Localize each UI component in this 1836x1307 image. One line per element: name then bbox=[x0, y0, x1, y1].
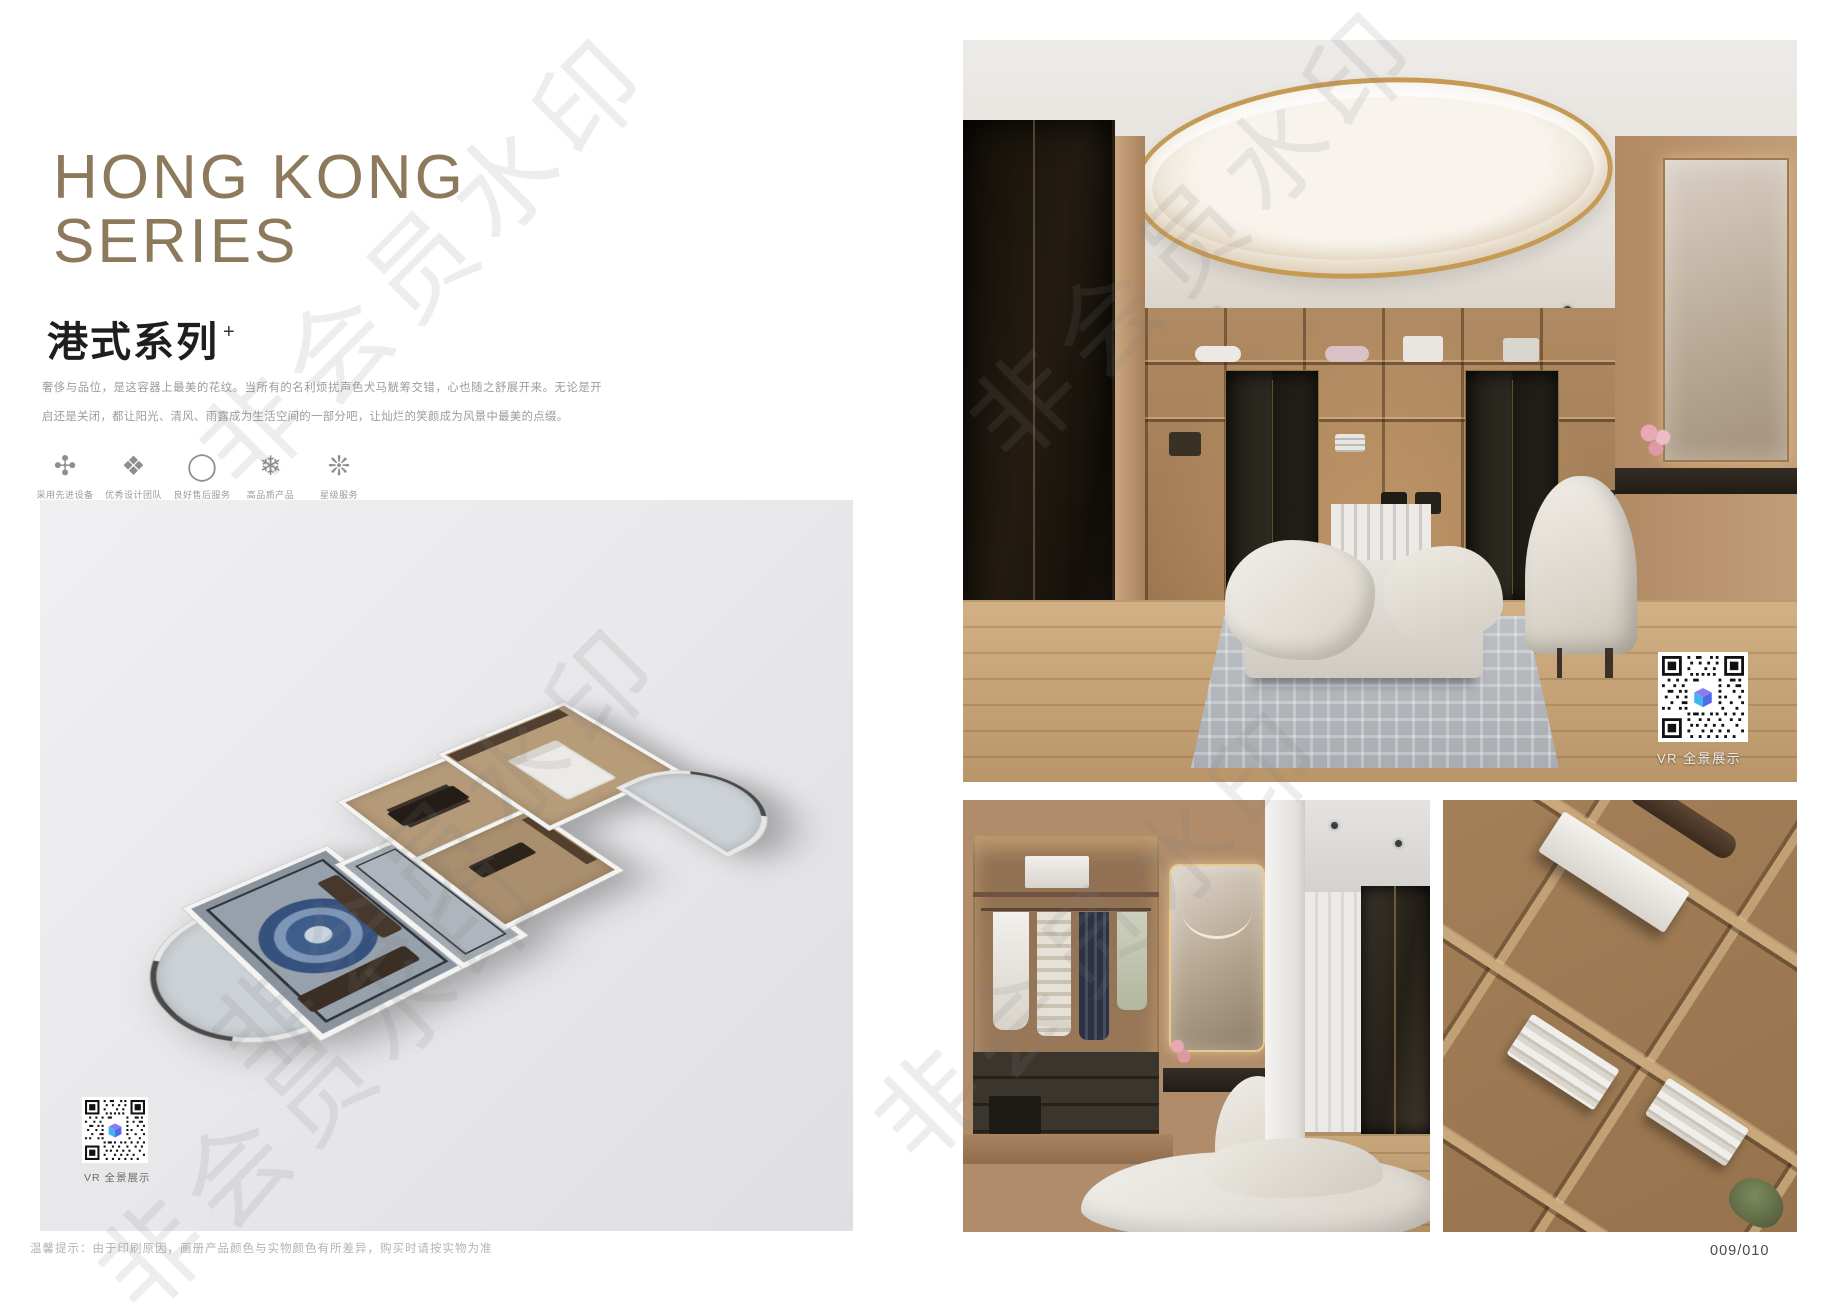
photo-shelf-detail bbox=[1443, 800, 1797, 1232]
wall-paneling bbox=[1305, 892, 1361, 1132]
hanging-shirts-blue bbox=[1159, 502, 1223, 588]
vanity-counter bbox=[1615, 468, 1797, 494]
feature-design-team: ❖ 优秀设计团队 bbox=[103, 450, 165, 501]
desk bbox=[468, 842, 537, 878]
feature-service: ❊ 星级服务 bbox=[308, 450, 370, 501]
series-title-line1: HONG KONG bbox=[53, 146, 466, 210]
flowers bbox=[1639, 422, 1673, 466]
pillow bbox=[1195, 346, 1241, 362]
series-title: HONG KONG SERIES bbox=[53, 146, 466, 274]
downlight bbox=[1331, 822, 1338, 829]
draped-cloth bbox=[1383, 546, 1503, 642]
flowers bbox=[1167, 1036, 1193, 1070]
catalog-page: HONG KONG SERIES 港式系列+ 奢侈与品位，是这容器上最美的花纹。… bbox=[0, 0, 1836, 1307]
ring-icon: ◯ bbox=[171, 450, 233, 482]
feature-after-sales: ◯ 良好售后服务 bbox=[171, 450, 233, 501]
floorplan-3d-render bbox=[45, 681, 830, 1137]
qr-code-image bbox=[85, 1100, 145, 1160]
photo-walkin-closet: VR 全景展示 bbox=[963, 40, 1797, 782]
feature-equipment: ✣ 采用先进设备 bbox=[34, 450, 96, 501]
draped-bedding bbox=[1203, 1138, 1383, 1198]
dining-table bbox=[387, 785, 470, 826]
plus-mark: + bbox=[223, 321, 237, 343]
hanging-dress-white bbox=[993, 912, 1029, 1030]
vr-qr-code bbox=[82, 1097, 148, 1163]
cabinet-base bbox=[963, 1134, 1173, 1164]
hanging-dress-patterned bbox=[1037, 912, 1071, 1036]
page-number: 009/010 bbox=[1710, 1243, 1769, 1259]
lit-mirror bbox=[1169, 864, 1265, 1052]
snowflake-icon: ❄ bbox=[240, 450, 302, 482]
qr-code-image bbox=[1662, 656, 1744, 738]
ceiling bbox=[1305, 800, 1430, 892]
storage-box bbox=[1503, 338, 1539, 362]
storage-box bbox=[1025, 856, 1089, 888]
shelf bbox=[973, 892, 1159, 897]
footer-tip: 温馨提示：由于印刷原因，画册产品颜色与实物颜色有所差异，购买时请按实物为准 bbox=[30, 1240, 493, 1256]
star-icon: ❊ bbox=[308, 450, 370, 482]
photo-dressing-area bbox=[963, 800, 1430, 1232]
vanity-mirror bbox=[1663, 158, 1789, 462]
pillow-pink bbox=[1325, 346, 1369, 362]
vr-label: VR 全景展示 bbox=[84, 1170, 151, 1185]
vr-label: VR 全景展示 bbox=[1657, 748, 1741, 767]
rosette-icon: ❖ bbox=[103, 450, 165, 482]
series-subtitle: 港式系列+ bbox=[47, 308, 237, 368]
handbag bbox=[1169, 432, 1201, 456]
black-box bbox=[989, 1096, 1041, 1134]
glass-wardrobe bbox=[1361, 886, 1430, 1134]
feature-quality: ❄ 高品质产品 bbox=[240, 450, 302, 501]
ornament-icon: ✣ bbox=[34, 450, 96, 482]
bed bbox=[507, 740, 617, 801]
feature-row: ✣ 采用先进设备 ❖ 优秀设计团队 ◯ 良好售后服务 ❄ 高品质产品 ❊ 星级服… bbox=[34, 450, 370, 501]
floorplan-panel: VR 全景展示 bbox=[40, 500, 853, 1231]
series-description: 奢侈与品位，是这容器上最美的花纹。当所有的名利烦扰声色犬马觥筹交错，心也随之舒展… bbox=[42, 374, 602, 432]
series-subtitle-cn: 港式系列 bbox=[47, 319, 219, 365]
downlight bbox=[1395, 840, 1402, 847]
chair-legs bbox=[1557, 648, 1613, 678]
folded-clothes bbox=[1335, 434, 1365, 452]
hanging-rod bbox=[981, 908, 1151, 911]
draped-cloth bbox=[1225, 540, 1375, 660]
hanging-top-sage bbox=[1117, 912, 1147, 1010]
storage-box bbox=[1403, 336, 1443, 362]
series-title-line2: SERIES bbox=[53, 210, 466, 274]
vr-qr-code bbox=[1658, 652, 1748, 742]
hanging-coat-navy bbox=[1079, 912, 1109, 1040]
